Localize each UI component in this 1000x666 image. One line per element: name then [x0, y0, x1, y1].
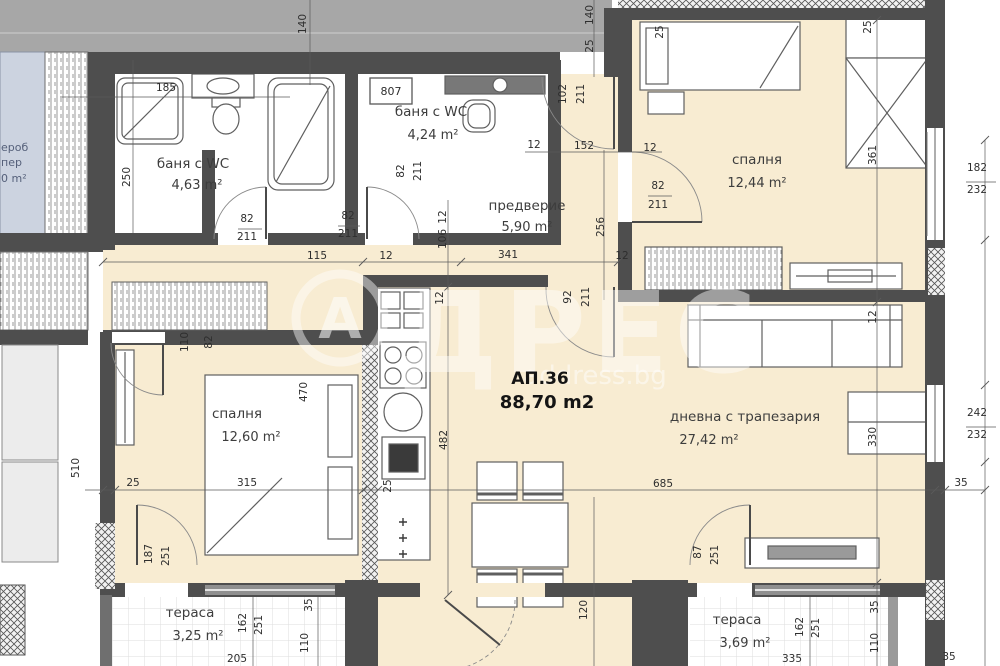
- dresser-icon: [790, 263, 902, 289]
- room-name-label: тераса: [713, 612, 762, 628]
- dimension-label: 251: [810, 618, 822, 638]
- dimension-label: 251: [160, 546, 172, 566]
- dimension-label: 35: [954, 477, 967, 489]
- dimension-label: 110: [869, 633, 881, 653]
- dimension-label: 25: [654, 25, 666, 38]
- neighbor-wardrobe-icon: [0, 252, 88, 330]
- room-name-label: предверие: [489, 198, 566, 214]
- dimension-label: 82: [341, 210, 354, 222]
- dimension-label: 251: [253, 615, 265, 635]
- boiler-box-label: 807: [381, 85, 402, 98]
- dimension-label: 25: [126, 477, 139, 489]
- bathtub-icon: [268, 78, 334, 190]
- room-area-label: 12,44 m²: [727, 176, 786, 191]
- dimension-label: 361: [867, 145, 879, 165]
- dimension-label: 12: [434, 291, 446, 304]
- dimension-label: 12: [527, 139, 540, 151]
- dimension-label: 211: [580, 287, 592, 307]
- dimension-label: 211: [338, 228, 358, 240]
- terrace-left-door-opening: [125, 583, 188, 597]
- dimension-label: 115: [307, 250, 327, 262]
- dimension-label: 211: [412, 161, 424, 181]
- dimension-label: 205: [227, 653, 247, 665]
- dimension-label: 211: [575, 84, 587, 104]
- dimension-label: 162: [794, 617, 806, 637]
- dimension-label: 102: [557, 84, 569, 104]
- dimension-label: 82: [203, 335, 215, 348]
- dimension-label: 12: [615, 250, 628, 262]
- room-area-label: 4,24 m²: [408, 128, 459, 143]
- dimension-label: 82: [651, 180, 664, 192]
- dimension-label: 685: [653, 478, 673, 490]
- apartment-id-label: АП.36: [511, 369, 569, 389]
- bedroom-left-door-opening: [112, 332, 165, 343]
- dimension-label: 12: [867, 310, 879, 323]
- watermark-logo-letter: А: [318, 287, 362, 352]
- floorplan-screenshot: А ДРЕС address.bg 1401852508221182211822…: [0, 0, 1000, 666]
- dimension-label: 35: [869, 600, 881, 613]
- dimension-label: 12: [437, 210, 449, 223]
- dimension-label: 162: [237, 613, 249, 633]
- room-name-label: баня с WC: [157, 156, 229, 172]
- dimension-label: 256: [595, 217, 607, 237]
- dimension-label: 82: [395, 164, 407, 177]
- toilet-icon: [212, 98, 240, 134]
- room-name-label: спалня: [732, 152, 782, 168]
- room-name-label: дневна с трапезария: [670, 409, 820, 425]
- dimension-label: 110: [179, 332, 191, 352]
- hall-wardrobe-icon: [112, 282, 267, 330]
- dimension-label: 510: [70, 458, 82, 478]
- insulation-hatch: [618, 0, 935, 8]
- sink-icon: [192, 74, 254, 98]
- bedroom-door-opening: [618, 152, 632, 222]
- dimension-label: 335: [782, 653, 802, 665]
- dimension-label: 232: [967, 184, 987, 196]
- dimension-label: 87: [692, 545, 704, 558]
- dimension-label: 35: [303, 598, 315, 611]
- room-name-label: баня с WC: [395, 104, 467, 120]
- dimension-label: 482: [438, 430, 450, 450]
- dimension-label: 187: [143, 544, 155, 564]
- dimension-label: 341: [498, 249, 518, 261]
- bath2-sink-icon: [493, 78, 507, 92]
- dimension-label: 25: [382, 479, 394, 492]
- dimension-label: 106: [437, 229, 449, 249]
- dimension-label: 25: [862, 20, 874, 33]
- room-area-label: 27,42 m²: [679, 433, 738, 448]
- neighbor-text-fragment: 0 m²: [1, 172, 27, 185]
- room-area-label: 5,90 m²: [502, 220, 553, 235]
- bed-icon: [205, 375, 358, 555]
- dimension-label: 315: [237, 477, 257, 489]
- dimension-label: 12: [379, 250, 392, 262]
- room-name-label: тераса: [166, 605, 215, 621]
- terrace-right-door-opening: [697, 583, 752, 597]
- neighbor-text-fragment: ероб: [1, 141, 28, 154]
- dimension-label: 12: [643, 142, 656, 154]
- tv-cabinet-icon: [745, 538, 879, 568]
- wardrobe-icon: [846, 14, 928, 168]
- dimension-label: 35: [942, 651, 955, 663]
- washbasin-icon: [463, 100, 495, 132]
- bottom-door-opening: [420, 583, 545, 597]
- neighbor-furniture-icon: [2, 462, 58, 562]
- dimension-label: 251: [709, 545, 721, 565]
- dimension-label: 110: [299, 633, 311, 653]
- dimension-label: 211: [648, 199, 668, 211]
- dimension-label: 120: [578, 600, 590, 620]
- dimension-label: 140: [584, 5, 596, 25]
- dimension-label: 82: [240, 213, 253, 225]
- neighbor-text-fragment: пер: [1, 156, 22, 169]
- dimension-label: 152: [574, 140, 594, 152]
- dimension-label: 211: [237, 231, 257, 243]
- room-name-label: спалня: [212, 406, 262, 422]
- dimension-label: 330: [867, 427, 879, 447]
- neighbor-wardrobe-icon: [45, 52, 88, 235]
- apartment-floorplan: А ДРЕС address.bg 1401852508221182211822…: [0, 0, 1000, 666]
- dimension-label: 182: [967, 162, 987, 174]
- neighbor-bed-icon: [2, 345, 58, 460]
- room-area-label: 3,69 m²: [720, 636, 771, 651]
- desk-icon: [848, 392, 930, 454]
- room-area-label: 4,63 m²: [172, 178, 223, 193]
- shaft-hatch: [362, 330, 378, 583]
- dimension-label: 250: [121, 167, 133, 187]
- apartment-area-label: 88,70 m2: [500, 392, 594, 413]
- dimension-label: 140: [297, 14, 309, 34]
- room-area-label: 12,60 m²: [221, 430, 280, 445]
- dimension-label: 232: [967, 429, 987, 441]
- dimension-label: 92: [562, 290, 574, 303]
- dimension-label: 470: [298, 382, 310, 402]
- dimension-label: 185: [156, 82, 176, 94]
- dimension-label: 242: [967, 407, 987, 419]
- dimension-label: 25: [584, 39, 596, 52]
- room-area-label: 3,25 m²: [173, 629, 224, 644]
